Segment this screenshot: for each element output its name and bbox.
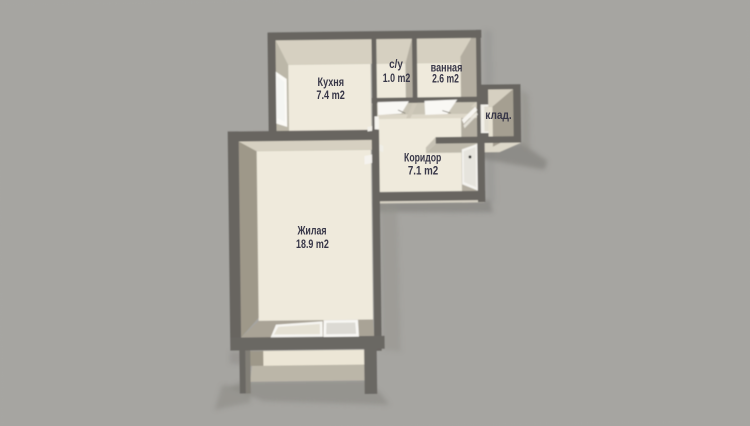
svg-text:18.9 m2: 18.9 m2 (296, 238, 329, 251)
svg-text:7.1 m2: 7.1 m2 (408, 164, 438, 177)
svg-text:1.0 m2: 1.0 m2 (383, 72, 411, 85)
svg-text:7.4 m2: 7.4 m2 (316, 89, 344, 102)
svg-text:Жилая: Жилая (297, 224, 327, 237)
svg-text:Кухня: Кухня (318, 76, 345, 89)
svg-text:с/у: с/у (389, 58, 403, 71)
svg-text:2.6 m2: 2.6 m2 (432, 73, 459, 86)
svg-text:клад.: клад. (485, 109, 512, 122)
svg-text:Коридор: Коридор (404, 152, 441, 165)
